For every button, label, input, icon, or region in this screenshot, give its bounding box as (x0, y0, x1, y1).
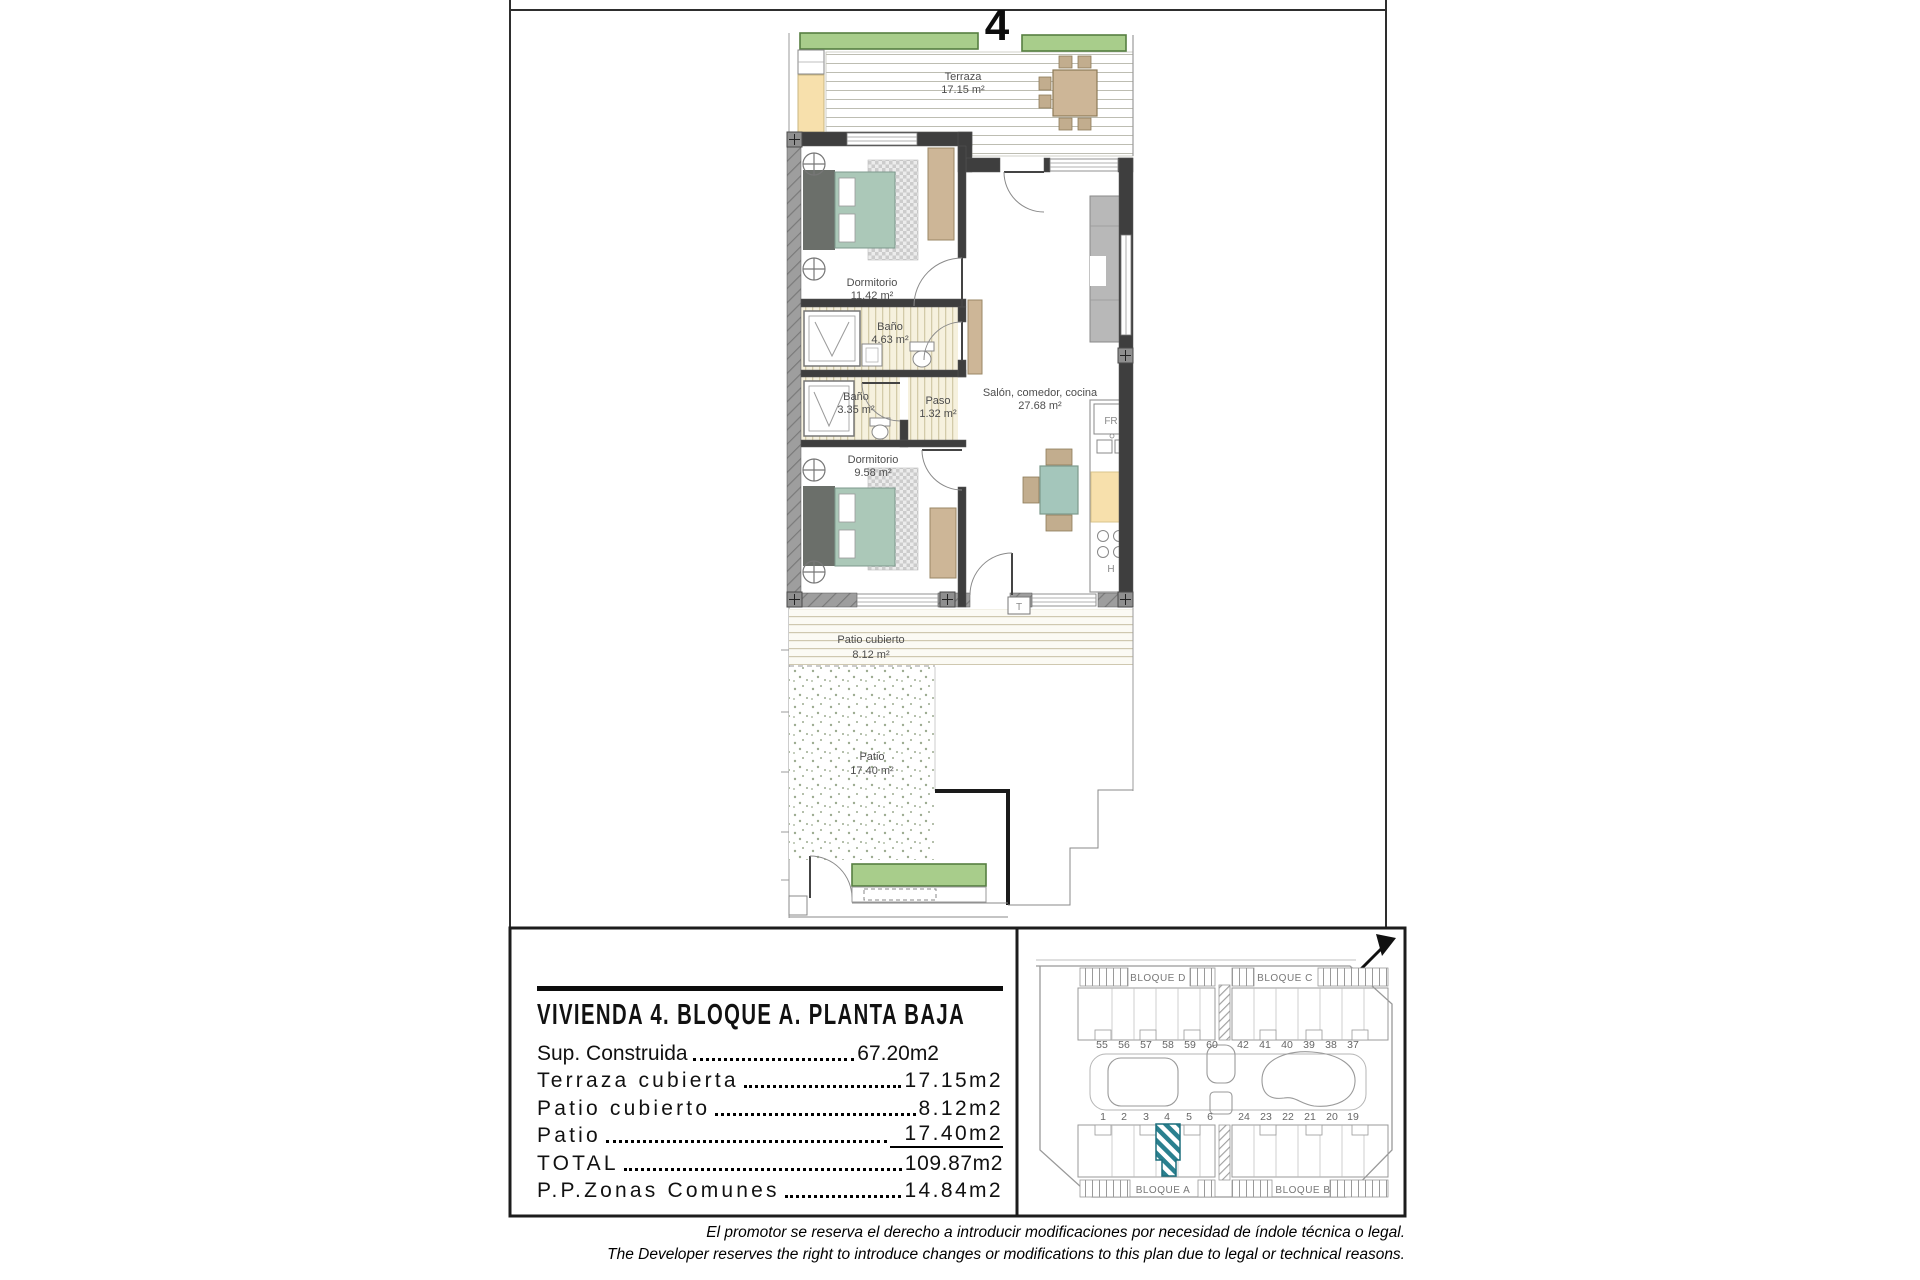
siteplan-unit-number: 2 (1121, 1111, 1127, 1123)
room-area-label: 17.15 m² (941, 84, 985, 96)
row-value: 14.84m2 (904, 1179, 1003, 1203)
dot-leader (624, 1168, 902, 1171)
block-label: BLOQUE A (1136, 1185, 1191, 1196)
siteplan-unit-number: 3 (1143, 1111, 1149, 1123)
toilet-icon (870, 418, 890, 439)
siteplan-unit-number: 20 (1326, 1111, 1338, 1123)
row-label: Terraza cubierta (537, 1069, 739, 1093)
bed-2 (803, 486, 895, 566)
table-row: Patio 17.40m2 (537, 1121, 1003, 1149)
siteplan-unit-number: 39 (1303, 1039, 1315, 1051)
sink-icon (862, 344, 882, 366)
siteplan-unit-number: 38 (1325, 1039, 1337, 1051)
row-label: TOTAL (537, 1152, 619, 1176)
siteplan-unit-number: 37 (1347, 1039, 1359, 1051)
row-value: 109.87m2 (905, 1152, 1003, 1176)
disclaimer: El promotor se reserva el derecho a intr… (607, 1222, 1405, 1266)
siteplan-unit-number: 59 (1184, 1039, 1196, 1051)
dining-set (1023, 449, 1078, 531)
siteplan-unit-number: 24 (1238, 1111, 1250, 1123)
room-label: Salón, comedor, cocina (983, 387, 1098, 399)
hedge-icon (1022, 35, 1126, 51)
row-label: Sup. Construida (537, 1042, 688, 1066)
siteplan-unit-number: 23 (1260, 1111, 1272, 1123)
room-area-label: 4.63 m² (871, 334, 909, 346)
room-dormitorio-1: Dormitorio 11.42 m² (803, 148, 954, 302)
block-label: BLOQUE B (1275, 1185, 1330, 1196)
room-area-label: 8.12 m² (852, 649, 890, 661)
siteplan-unit-number: 40 (1281, 1039, 1293, 1051)
tank-label: T (1016, 602, 1022, 613)
dot-leader (606, 1140, 888, 1143)
room-label: Patio (859, 751, 884, 763)
siteplan-unit-number: 60 (1206, 1039, 1218, 1051)
dot-leader (715, 1113, 915, 1116)
table-row: Patio cubierto 8.12m2 (537, 1093, 1003, 1121)
dot-leader (785, 1195, 902, 1198)
room-patio: Patio 17.40 m² (789, 667, 1133, 917)
room-label: Dormitorio (848, 454, 899, 466)
table-row: Sup. Construida 67.20m2 (537, 1038, 1003, 1066)
dot-leader (744, 1085, 902, 1088)
fridge-label: FR (1104, 416, 1117, 427)
siteplan-unit-number: 4 (1164, 1111, 1170, 1123)
table-row: P.P.Zonas Comunes 14.84m2 (537, 1176, 1003, 1204)
row-value: 17.40m2 (890, 1122, 1003, 1148)
wardrobe (928, 148, 954, 240)
shower-icon (804, 311, 860, 366)
hob-label: H (1107, 564, 1114, 575)
siteplan-unit-number: 41 (1259, 1039, 1271, 1051)
room-dormitorio-2: Dormitorio 9.58 m² (803, 454, 956, 583)
room-area-label: 27.68 m² (1018, 400, 1062, 412)
siteplan-unit-number: 55 (1096, 1039, 1108, 1051)
disclaimer-en: The Developer reserves the right to intr… (607, 1244, 1405, 1266)
block-label: BLOQUE C (1257, 973, 1313, 984)
row-label: Patio (537, 1124, 601, 1148)
dot-leader (693, 1058, 855, 1061)
patio-gate (789, 856, 852, 915)
room-label: Baño (877, 321, 903, 333)
row-value: 8.12m2 (919, 1097, 1003, 1121)
room-area-label: 1.32 m² (919, 408, 957, 420)
room-salon: FR H Salón, comedor, cocina 27.68 m² (968, 196, 1132, 592)
wardrobe (930, 508, 956, 578)
siteplan-unit-number: 58 (1162, 1039, 1174, 1051)
summary-table: VIVIENDA 4. BLOQUE A. PLANTA BAJA Sup. C… (537, 986, 1003, 1203)
siteplan-unit-number: 6 (1207, 1111, 1213, 1123)
room-label: Terraza (945, 71, 983, 83)
table-row: TOTAL 109.87m2 (537, 1148, 1003, 1176)
room-area-label: 17.40 m² (850, 765, 894, 777)
room-label: Dormitorio (847, 277, 898, 289)
room-label: Paso (925, 395, 950, 407)
block-label: BLOQUE D (1130, 973, 1186, 984)
row-label: Patio cubierto (537, 1097, 710, 1121)
siteplan-unit-number: 1 (1100, 1111, 1106, 1123)
row-label: P.P.Zonas Comunes (537, 1179, 780, 1203)
siteplan-unit-number: 56 (1118, 1039, 1130, 1051)
room-label: Patio cubierto (837, 634, 904, 646)
summary-title: VIVIENDA 4. BLOQUE A. PLANTA BAJA (537, 999, 863, 1032)
siteplan-unit-number: 42 (1237, 1039, 1249, 1051)
siteplan-unit-number: 22 (1282, 1111, 1294, 1123)
table-row: Terraza cubierta 17.15m2 (537, 1066, 1003, 1094)
siteplan-unit-number: 21 (1304, 1111, 1316, 1123)
hedge-icon (800, 33, 978, 49)
siteplan-unit-number: 19 (1347, 1111, 1359, 1123)
hedge-icon (852, 864, 986, 886)
row-value: 17.15m2 (904, 1069, 1003, 1093)
siteplan-unit-number: 5 (1186, 1111, 1192, 1123)
bed-1 (803, 170, 895, 250)
unit-number: 4 (985, 1, 1010, 50)
disclaimer-es: El promotor se reserva el derecho a intr… (607, 1222, 1405, 1244)
title-rule (537, 986, 1003, 991)
siteplan-unit-number: 57 (1140, 1039, 1152, 1051)
floor-plan: Terraza 17.15 m² Dormitorio 11.42 m² (781, 33, 1133, 918)
room-area-label: 9.58 m² (854, 467, 892, 479)
row-value: 67.20m2 (857, 1042, 939, 1066)
cabinet (968, 300, 982, 374)
planter (798, 75, 824, 132)
